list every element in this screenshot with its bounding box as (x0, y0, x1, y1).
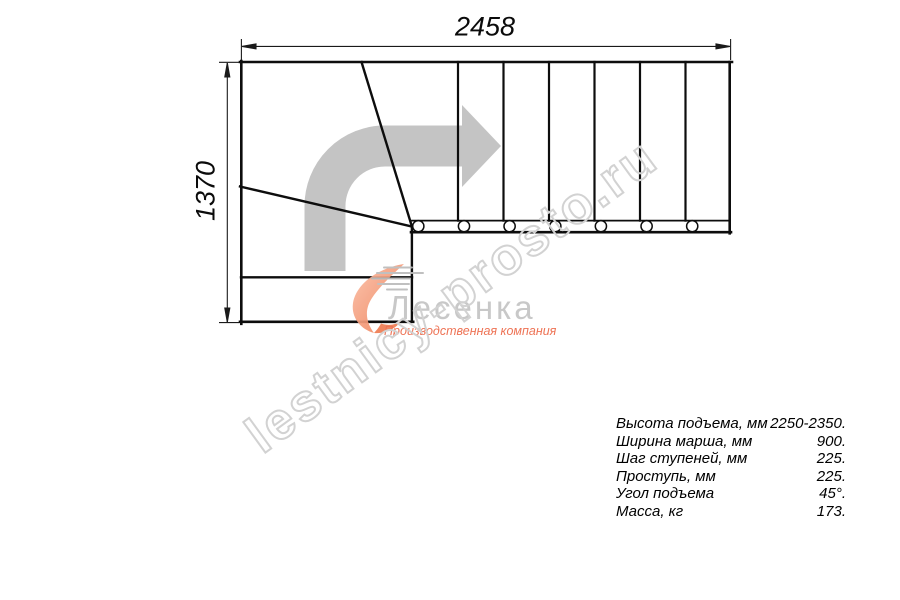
spec-row: Ширина марша, мм 900. (616, 433, 846, 451)
logo-subtitle: Производственная компания (384, 325, 556, 338)
spec-label: Масса, кг (616, 503, 683, 521)
spec-value: 900. (817, 433, 846, 451)
spec-row: Масса, кг 173. (616, 503, 846, 521)
spec-label: Ширина марша, мм (616, 433, 752, 451)
dimension-lines (219, 39, 731, 323)
logo-brand-name: Лесенка (388, 291, 536, 324)
spec-label: Угол подъема (616, 485, 714, 503)
spec-row: Угол подъема 45°. (616, 485, 846, 503)
specs-table: Высота подъема, мм 2250-2350. Ширина мар… (616, 415, 846, 521)
spec-value: 225. (817, 450, 846, 468)
dimension-top-label: 2458 (455, 14, 515, 41)
baluster-markers (413, 221, 698, 232)
spec-row: Шаг ступеней, мм 225. (616, 450, 846, 468)
spec-value: 225. (817, 468, 846, 486)
spec-value: 2250-2350. (770, 415, 846, 433)
spec-row: Проступь, мм 225. (616, 468, 846, 486)
spec-value: 45°. (819, 485, 846, 503)
spec-label: Шаг ступеней, мм (616, 450, 747, 468)
spec-value: 173. (817, 503, 846, 521)
dimension-left-label: 1370 (193, 161, 220, 221)
stair-plan-page: 2458 1370 Лесенка Производственная компа… (0, 0, 900, 600)
spec-row: Высота подъема, мм 2250-2350. (616, 415, 846, 433)
spec-label: Высота подъема, мм (616, 415, 768, 433)
spec-label: Проступь, мм (616, 468, 716, 486)
